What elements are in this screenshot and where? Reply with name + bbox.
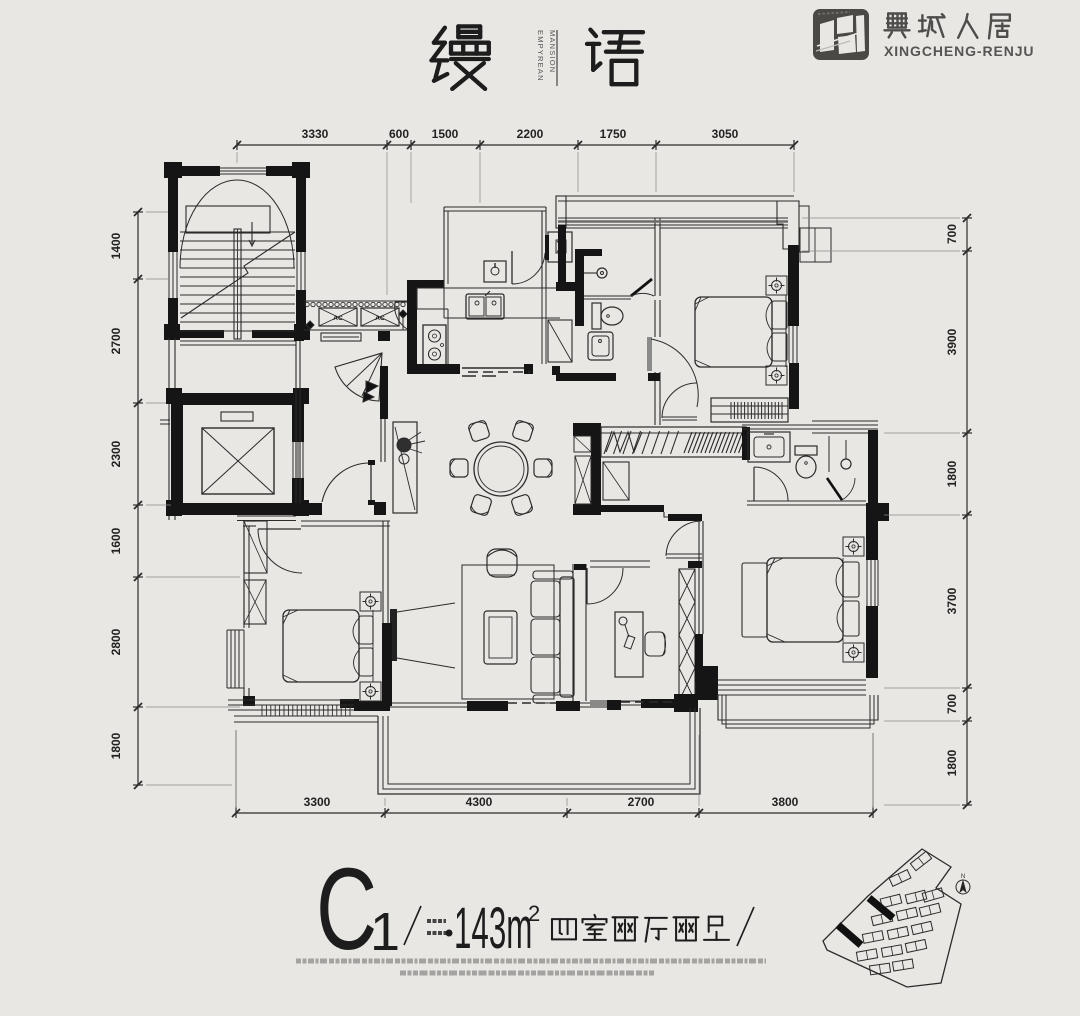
svg-text:3330: 3330 (302, 127, 329, 141)
svg-text:1: 1 (370, 902, 400, 962)
svg-text:700: 700 (945, 694, 959, 714)
svg-text:2200: 2200 (517, 127, 544, 141)
svg-text:1800: 1800 (945, 460, 959, 487)
svg-text:1800: 1800 (945, 749, 959, 776)
svg-text:XINGCHENG-RENJU: XINGCHENG-RENJU (884, 43, 1034, 59)
svg-text:700: 700 (945, 224, 959, 244)
svg-text:EMPYREAN: EMPYREAN (536, 30, 545, 82)
svg-text:3900: 3900 (945, 328, 959, 355)
svg-text:AC: AC (375, 315, 385, 322)
svg-text:2: 2 (528, 901, 540, 926)
svg-text:1500: 1500 (432, 127, 459, 141)
svg-text:1400: 1400 (109, 232, 123, 259)
svg-text:2300: 2300 (109, 440, 123, 467)
svg-text:1750: 1750 (600, 127, 627, 141)
svg-text:1600: 1600 (109, 527, 123, 554)
svg-text:3050: 3050 (712, 127, 739, 141)
svg-text:2700: 2700 (628, 795, 655, 809)
svg-text:3800: 3800 (772, 795, 799, 809)
svg-text:143m: 143m (454, 896, 532, 961)
svg-text:2700: 2700 (109, 327, 123, 354)
svg-text:4300: 4300 (466, 795, 493, 809)
svg-text:600: 600 (389, 127, 409, 141)
svg-text:1800: 1800 (109, 732, 123, 759)
svg-text:3300: 3300 (304, 795, 331, 809)
svg-text:3700: 3700 (945, 587, 959, 614)
svg-text:2800: 2800 (109, 628, 123, 655)
svg-text:AC: AC (333, 315, 343, 322)
svg-text:N: N (961, 874, 965, 880)
svg-text:C: C (316, 844, 377, 974)
svg-text:MANSION: MANSION (548, 30, 557, 73)
